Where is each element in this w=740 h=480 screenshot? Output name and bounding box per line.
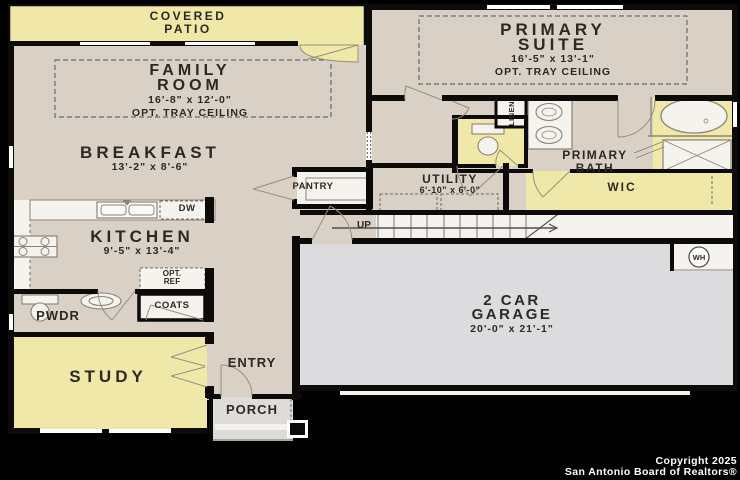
linen-label: LINEN xyxy=(498,99,524,127)
wic-label: WIC xyxy=(582,181,662,193)
garage-door-opening xyxy=(312,238,352,244)
utility-label: UTILITY 6'-10" x 6'-0" xyxy=(390,173,510,195)
double-vanity xyxy=(528,99,572,149)
kitchen-label: KITCHEN 9'-5" x 13'-4" xyxy=(42,229,242,257)
entry-label: ENTRY xyxy=(214,356,290,369)
breakfast-label: BREAKFAST 13'-2" x 8'-6" xyxy=(40,145,260,173)
garage-door xyxy=(340,391,690,395)
garage-label: 2 CAR GARAGE 20'-0" x 21'-1" xyxy=(432,294,592,335)
family-room-label: FAMILY ROOM 16'-8" x 12'-0" OPT. TRAY CE… xyxy=(60,63,320,118)
kitchen-sink xyxy=(97,201,157,218)
patio-window-1 xyxy=(80,42,150,45)
primary-bath-label: PRIMARY BATH xyxy=(535,149,655,174)
porch-step xyxy=(215,424,289,430)
patio-window-2 xyxy=(185,42,255,45)
porch-column xyxy=(290,423,305,435)
pantry-label: PANTRY xyxy=(277,182,349,192)
dishwasher-label: DW xyxy=(170,204,204,214)
suite-window-2 xyxy=(557,5,623,9)
water-heater-label: WH xyxy=(688,254,710,262)
suite-window-1 xyxy=(487,5,550,9)
powder-window xyxy=(9,314,13,330)
tub-window xyxy=(733,102,737,127)
porch-label: PORCH xyxy=(214,403,290,416)
study-label: STUDY xyxy=(48,368,168,385)
floor-plan: COVERED PATIO FAMILY ROOM 16'-8" x 12'-0… xyxy=(0,0,740,480)
primary-suite-label: PRIMARY SUITE 16'-5" x 13'-1" OPT. TRAY … xyxy=(433,22,673,77)
breakfast-window xyxy=(9,146,13,168)
covered-patio-label: COVERED PATIO xyxy=(88,10,288,36)
copyright-notice: Copyright 2025 San Antonio Board of Real… xyxy=(565,456,737,478)
coats-label: COATS xyxy=(141,301,203,311)
stairs-up-label: UP xyxy=(350,221,378,231)
opt-ref-label: OPT. REF xyxy=(142,270,202,286)
pwdr-label: PWDR xyxy=(22,309,94,322)
